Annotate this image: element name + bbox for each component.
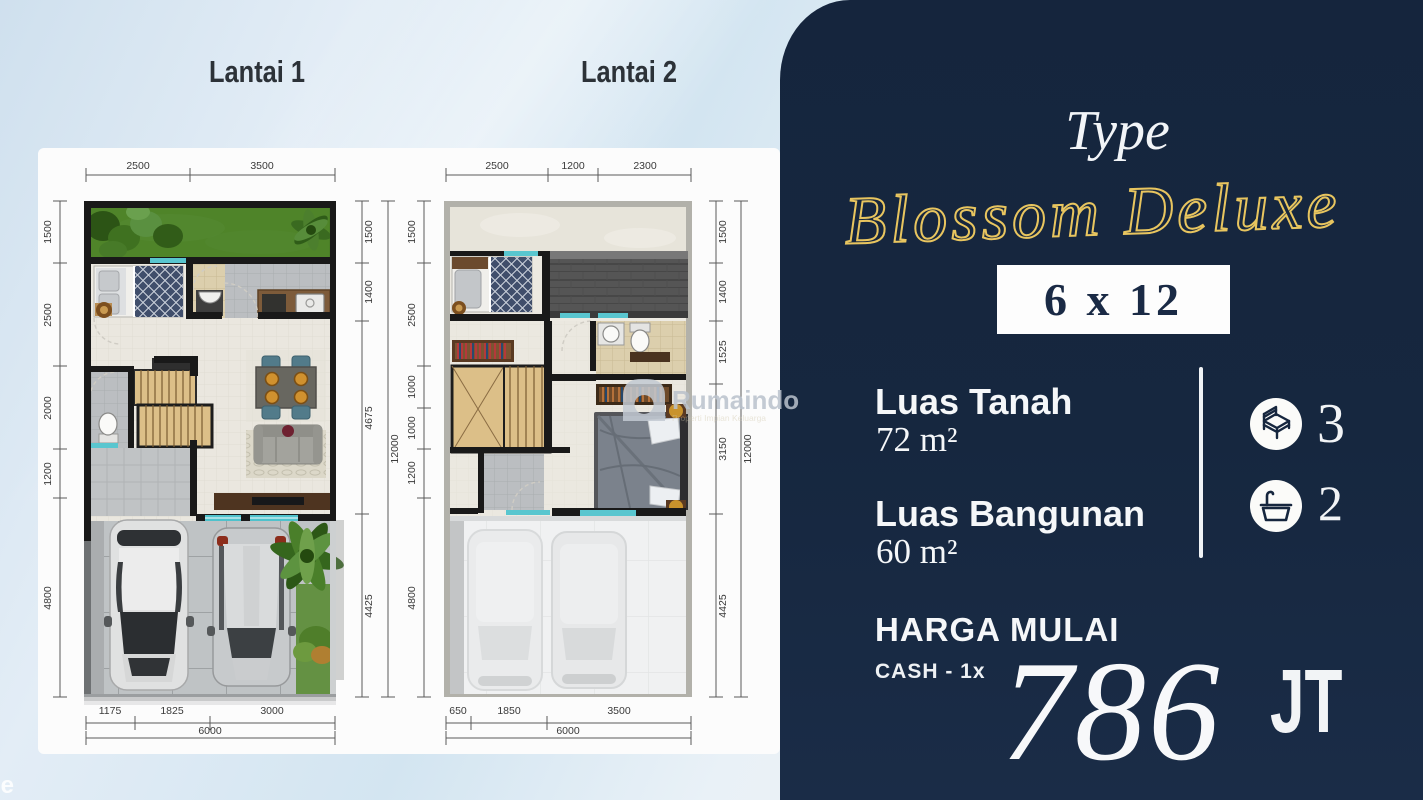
svg-text:3000: 3000 — [260, 705, 284, 717]
svg-text:2500: 2500 — [485, 160, 509, 172]
svg-text:12000: 12000 — [389, 434, 401, 463]
svg-text:1825: 1825 — [160, 705, 184, 717]
svg-text:1175: 1175 — [99, 705, 122, 717]
svg-text:650: 650 — [449, 705, 467, 717]
svg-text:3500: 3500 — [607, 705, 631, 717]
svg-text:1000: 1000 — [406, 375, 418, 399]
svg-text:1525: 1525 — [717, 340, 729, 364]
svg-text:1500: 1500 — [363, 220, 375, 244]
svg-text:2500: 2500 — [406, 303, 418, 327]
svg-text:12000: 12000 — [742, 434, 754, 463]
svg-text:6000: 6000 — [198, 725, 222, 737]
svg-text:1000: 1000 — [406, 416, 418, 440]
svg-text:4675: 4675 — [363, 406, 375, 430]
svg-text:1200: 1200 — [561, 160, 585, 172]
svg-text:2500: 2500 — [42, 303, 54, 327]
svg-text:1200: 1200 — [42, 462, 54, 486]
svg-text:1400: 1400 — [363, 280, 375, 304]
svg-text:2300: 2300 — [633, 160, 657, 172]
svg-text:1400: 1400 — [717, 280, 729, 304]
svg-text:1500: 1500 — [406, 220, 418, 244]
svg-text:3150: 3150 — [717, 437, 729, 461]
svg-text:1500: 1500 — [42, 220, 54, 244]
svg-text:4425: 4425 — [363, 594, 375, 618]
svg-text:4425: 4425 — [717, 594, 729, 618]
svg-text:Rumaindo: Rumaindo — [672, 385, 799, 415]
svg-text:4800: 4800 — [42, 586, 54, 610]
svg-text:1500: 1500 — [717, 220, 729, 244]
svg-text:6000: 6000 — [556, 725, 580, 737]
svg-text:2500: 2500 — [126, 160, 150, 172]
svg-text:1200: 1200 — [406, 461, 418, 485]
svg-text:3500: 3500 — [250, 160, 274, 172]
svg-text:Properti Impian Keluarga: Properti Impian Keluarga — [672, 413, 766, 423]
svg-text:4800: 4800 — [406, 586, 418, 610]
svg-text:2000: 2000 — [42, 396, 54, 420]
svg-text:1850: 1850 — [497, 705, 521, 717]
